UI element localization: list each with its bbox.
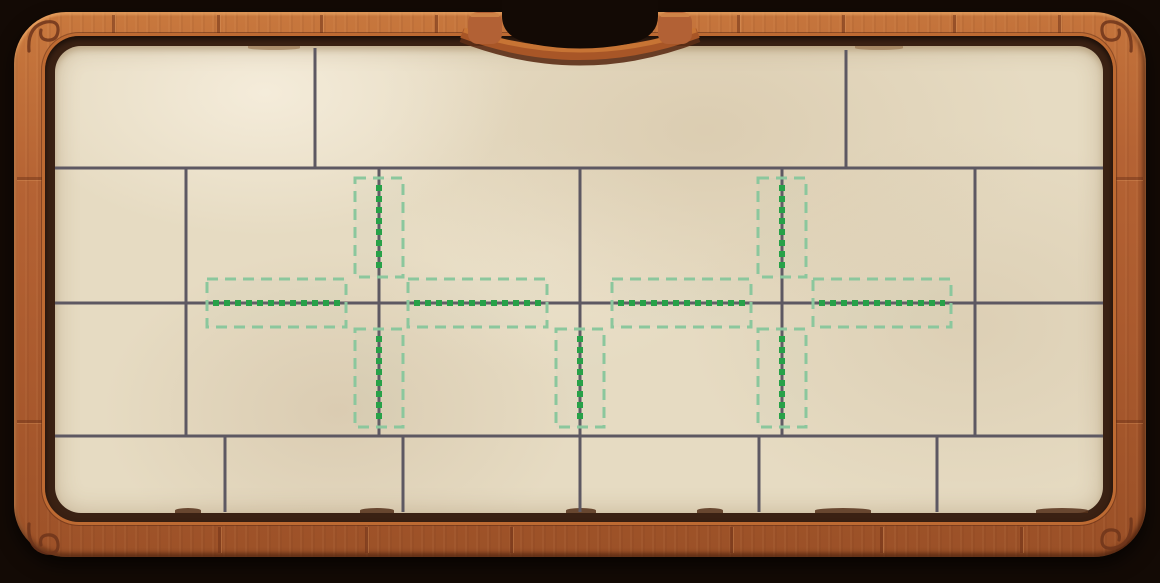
paper-edge-curl: [855, 46, 903, 50]
plank-seam: [17, 420, 45, 423]
placement-zone-right-cross-west[interactable]: [612, 279, 751, 327]
placement-zone-center-south[interactable]: [556, 329, 604, 427]
corner-ornament-icon: [1098, 18, 1134, 54]
placement-zone-right-cross-east[interactable]: [813, 279, 951, 327]
placement-zone-left-cross-south[interactable]: [355, 329, 403, 427]
plank-seam: [218, 527, 221, 553]
corner-ornament-icon: [26, 18, 62, 54]
paper-edge-curl: [248, 46, 300, 50]
corner-ornament-icon: [1098, 516, 1134, 552]
corner-ornament-icon: [26, 521, 62, 557]
placement-zone-right-cross-north[interactable]: [758, 178, 806, 277]
placement-zone-left-cross-north[interactable]: [355, 178, 403, 277]
game-stage: [0, 0, 1160, 583]
plank-seam: [510, 527, 513, 553]
plank-seam: [1115, 177, 1143, 180]
paper-edge-curl: [566, 508, 596, 513]
plank-seam: [880, 527, 883, 553]
plank-seam: [1115, 420, 1143, 423]
paper-edge-curl: [175, 508, 201, 513]
paper-edge-curl: [1036, 508, 1088, 513]
plank-seam: [730, 527, 733, 553]
zone-outline: [355, 329, 403, 427]
placement-zone-left-cross-west[interactable]: [207, 279, 346, 327]
placement-zone-right-cross-south[interactable]: [758, 329, 806, 427]
zone-outline: [758, 329, 806, 427]
paper-edge-curl: [815, 508, 871, 513]
paper-edge-curl: [360, 508, 394, 513]
plank-seam: [365, 527, 368, 553]
zone-outline: [556, 329, 604, 427]
placement-zone-left-cross-east[interactable]: [408, 279, 547, 327]
plank-seam: [1020, 527, 1023, 553]
paper-edge-curl: [697, 508, 723, 513]
plank-seam: [17, 177, 45, 180]
